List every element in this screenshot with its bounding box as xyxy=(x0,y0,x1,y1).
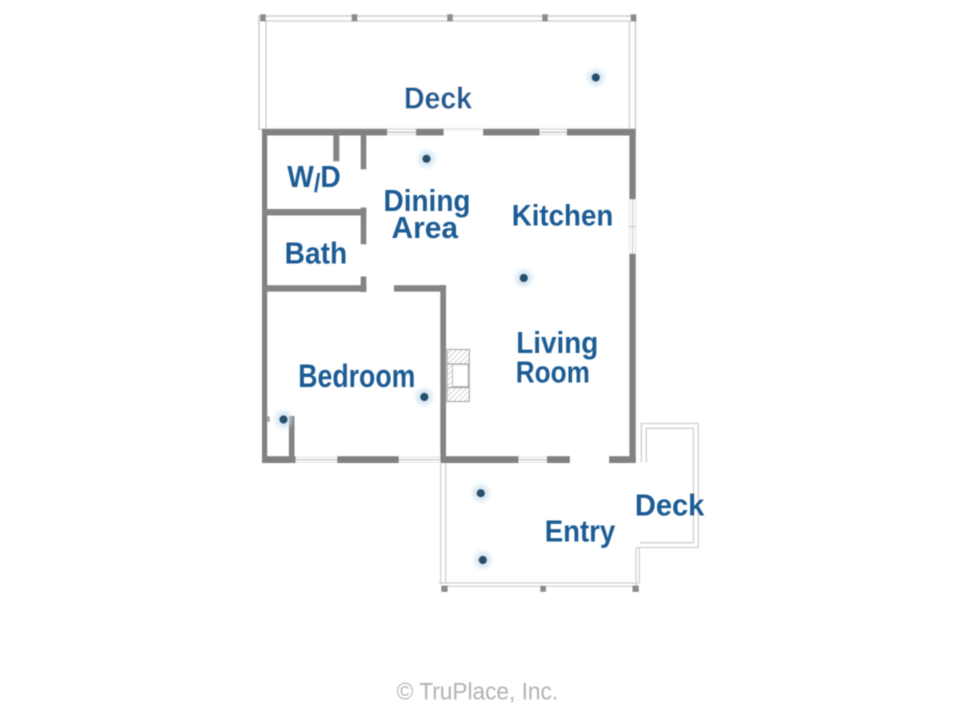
svg-text:Deck: Deck xyxy=(404,80,473,115)
svg-text:Kitchen: Kitchen xyxy=(512,200,614,233)
svg-text:Deck: Deck xyxy=(635,488,705,523)
svg-text:Entry: Entry xyxy=(545,514,616,549)
svg-text:Bedroom: Bedroom xyxy=(298,358,415,394)
svg-text:Bath: Bath xyxy=(285,236,348,271)
svg-text:Area: Area xyxy=(392,210,459,245)
svg-text:Room: Room xyxy=(516,355,590,390)
svg-text:© TruPlace, Inc.: © TruPlace, Inc. xyxy=(397,678,559,705)
